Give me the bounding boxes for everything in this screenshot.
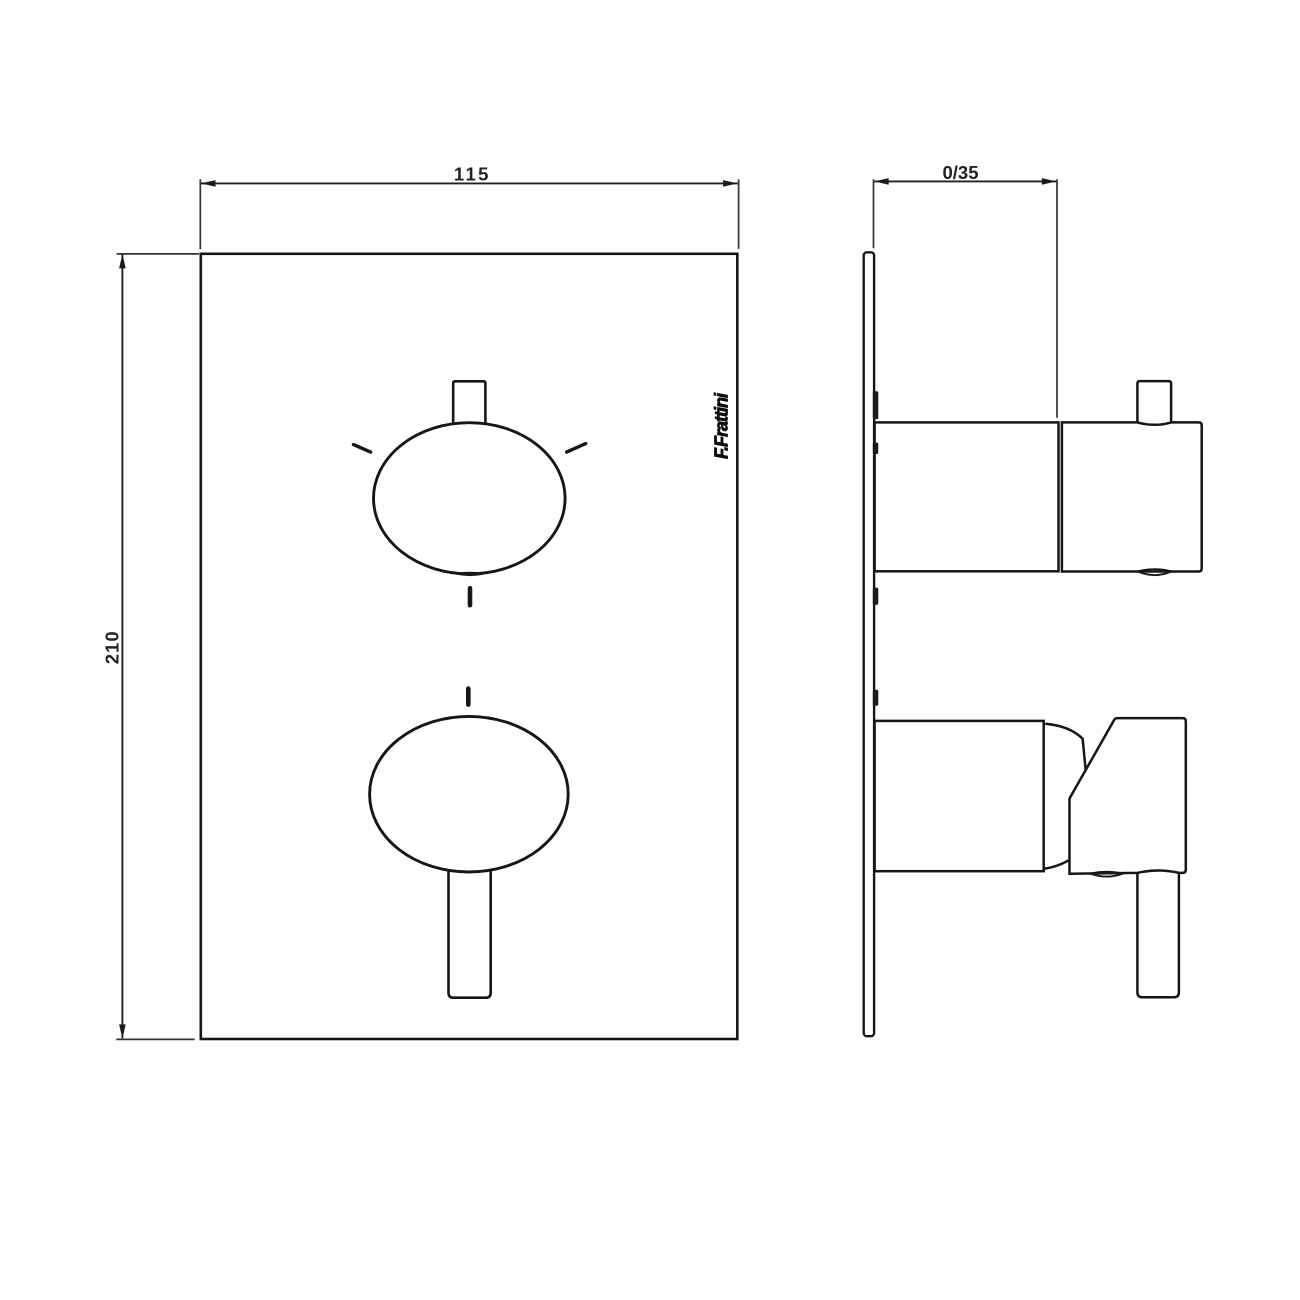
svg-text:0/35: 0/35: [942, 162, 978, 183]
svg-text:210: 210: [102, 630, 123, 664]
svg-text:115: 115: [454, 163, 491, 184]
svg-text:F.Frattini: F.Frattini: [712, 392, 732, 459]
